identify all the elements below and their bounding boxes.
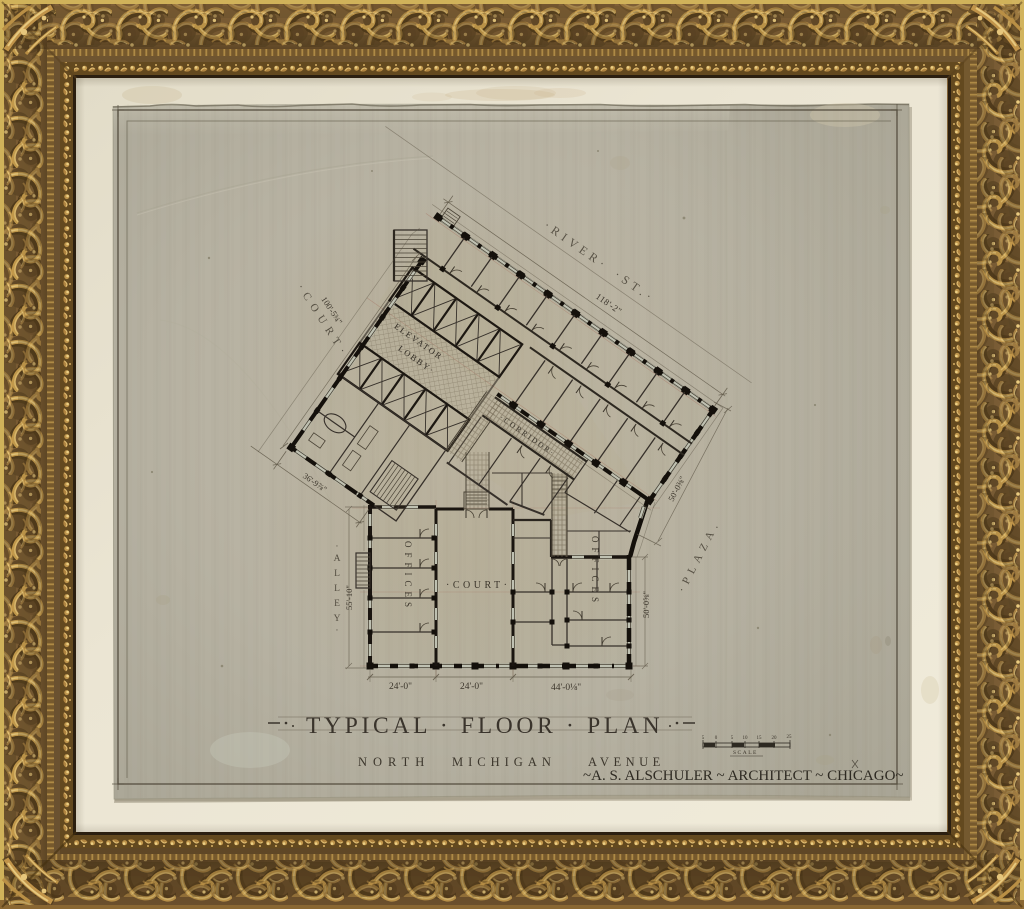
svg-text:TYPICAL · FLOOR · PLAN: TYPICAL · FLOOR · PLAN xyxy=(306,713,663,739)
svg-text:44'-0⅛": 44'-0⅛" xyxy=(551,683,581,693)
svg-text:~A. S. ALSCHULER ~ ARCHITECT ~: ~A. S. ALSCHULER ~ ARCHITECT ~ CHICAGO~ xyxy=(583,768,904,784)
svg-text:20: 20 xyxy=(772,736,778,741)
svg-text:24'-0": 24'-0" xyxy=(460,682,483,692)
svg-text:E: E xyxy=(334,599,340,609)
svg-text:·COURT·: ·COURT· xyxy=(446,580,510,591)
svg-text:OFFICES: OFFICES xyxy=(403,541,413,612)
svg-text:AVENUE: AVENUE xyxy=(588,755,665,769)
svg-text:25: 25 xyxy=(787,735,793,740)
svg-text:Y: Y xyxy=(334,614,341,624)
svg-text:24'-0": 24'-0" xyxy=(389,682,412,692)
svg-text:A: A xyxy=(334,554,341,564)
svg-text:50'-0⅝": 50'-0⅝" xyxy=(641,591,651,618)
svg-text:NORTH: NORTH xyxy=(358,755,430,769)
svg-text:15: 15 xyxy=(757,736,763,741)
svg-text:SCALE: SCALE xyxy=(733,750,758,756)
svg-text:L: L xyxy=(334,569,340,579)
svg-text:55'-10": 55'-10" xyxy=(344,585,354,610)
svg-text:MICHIGAN: MICHIGAN xyxy=(452,755,556,769)
svg-text:OFFICES: OFFICES xyxy=(590,536,600,607)
svg-text:·: · xyxy=(335,542,338,552)
svg-text:L: L xyxy=(334,584,340,594)
svg-text:10: 10 xyxy=(743,736,749,741)
svg-text:·: · xyxy=(335,626,338,636)
